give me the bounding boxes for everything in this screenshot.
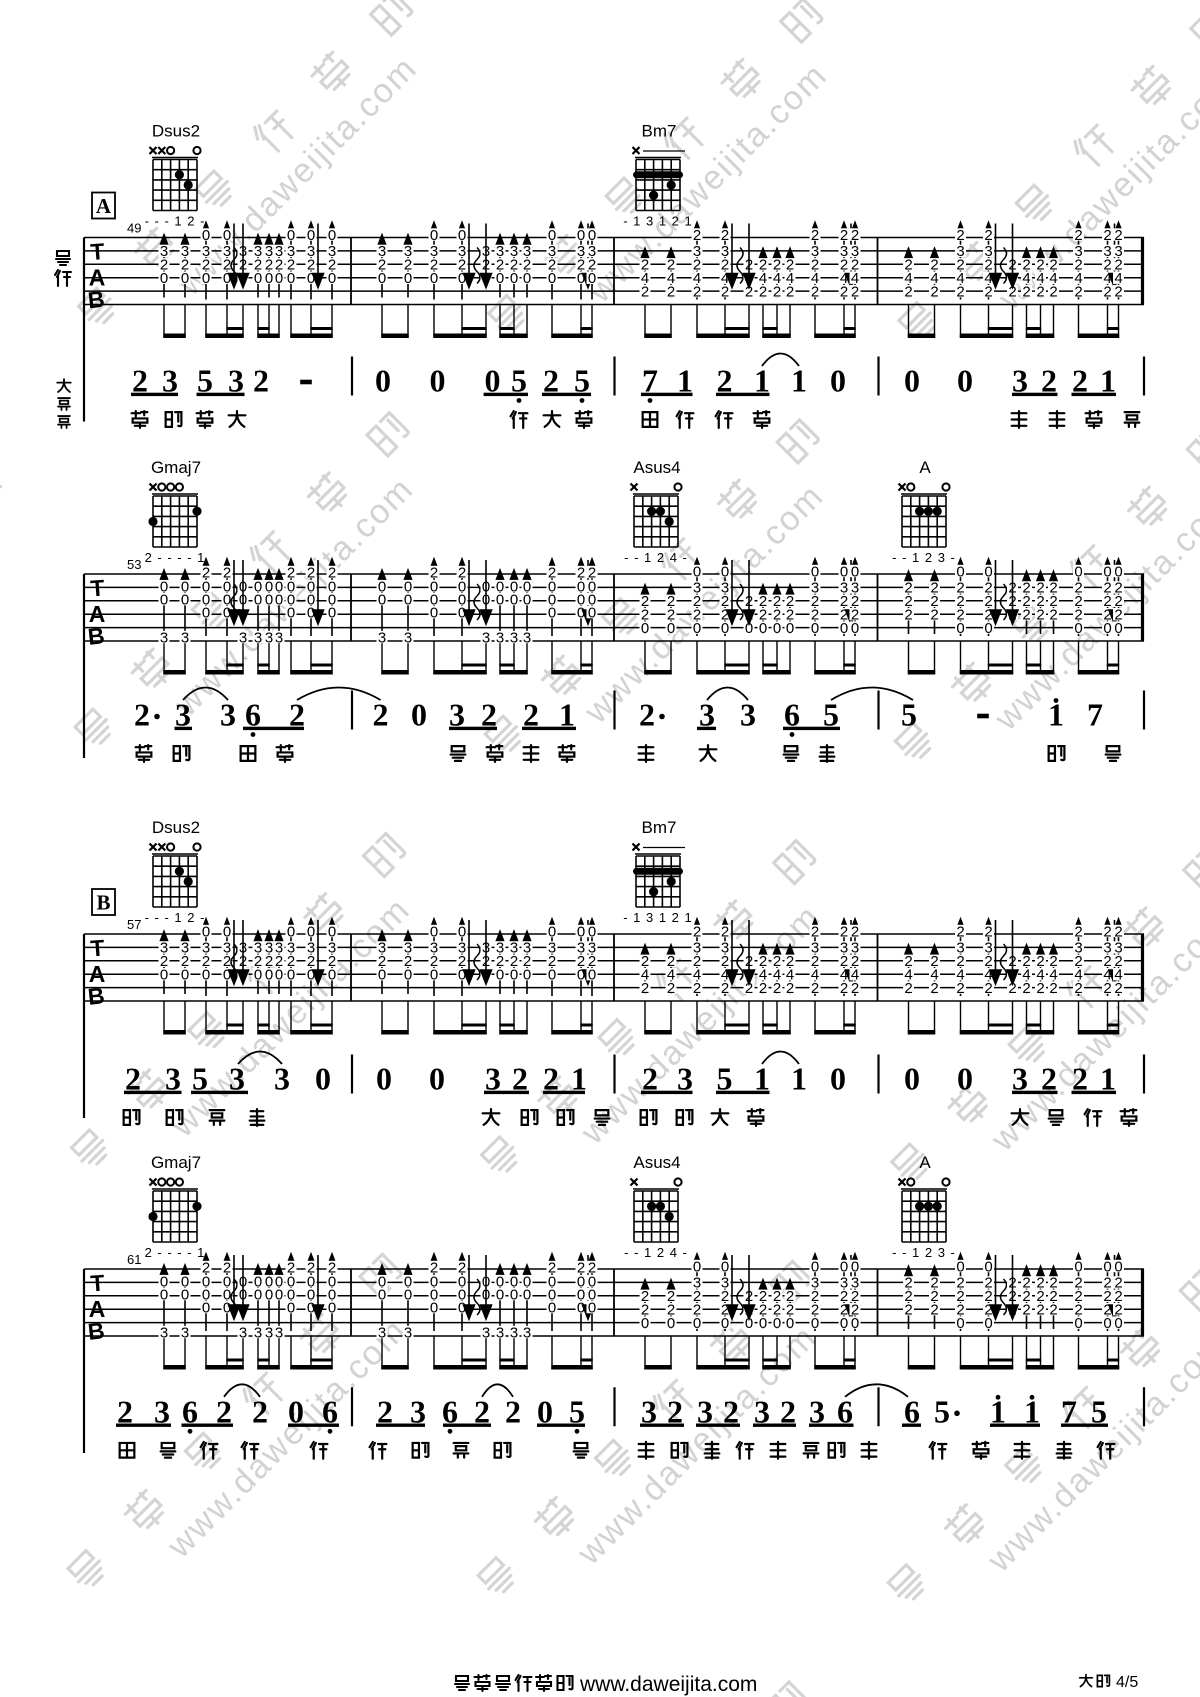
svg-text:53: 53 bbox=[127, 557, 141, 572]
svg-text:0: 0 bbox=[984, 620, 992, 637]
svg-text:0: 0 bbox=[430, 923, 438, 940]
svg-text:0: 0 bbox=[404, 591, 412, 608]
svg-text:0: 0 bbox=[202, 1299, 210, 1316]
svg-text:0: 0 bbox=[851, 620, 859, 637]
svg-text:2: 2 bbox=[1103, 227, 1111, 244]
svg-text:B: B bbox=[87, 1317, 106, 1345]
svg-text:2: 2 bbox=[904, 980, 912, 997]
svg-text:0: 0 bbox=[254, 270, 262, 287]
svg-text:2: 2 bbox=[373, 697, 389, 733]
svg-text:2: 2 bbox=[1074, 283, 1082, 300]
svg-text:0: 0 bbox=[811, 1315, 819, 1332]
svg-text:0: 0 bbox=[287, 1299, 295, 1316]
svg-text:2: 2 bbox=[1022, 980, 1030, 997]
svg-text:2: 2 bbox=[930, 283, 938, 300]
svg-text:2: 2 bbox=[811, 980, 819, 997]
svg-text:3: 3 bbox=[482, 629, 490, 646]
svg-text:2: 2 bbox=[956, 283, 964, 300]
svg-text:0: 0 bbox=[588, 967, 596, 984]
svg-text:A: A bbox=[919, 458, 931, 477]
svg-text:0: 0 bbox=[328, 923, 336, 940]
svg-text:0: 0 bbox=[429, 1061, 445, 1097]
svg-text:0: 0 bbox=[328, 270, 336, 287]
svg-text:0: 0 bbox=[721, 620, 729, 637]
svg-text:0: 0 bbox=[840, 563, 848, 580]
svg-text:2: 2 bbox=[1036, 1302, 1044, 1319]
svg-text:57: 57 bbox=[127, 917, 141, 932]
svg-text:0: 0 bbox=[254, 1286, 262, 1303]
svg-text:2: 2 bbox=[904, 607, 912, 624]
svg-text:- 1 3 1 2 1: - 1 3 1 2 1 bbox=[623, 910, 693, 925]
svg-text:2 - - - - 1: 2 - - - - 1 bbox=[145, 1245, 206, 1260]
svg-text:A: A bbox=[919, 1153, 931, 1172]
svg-text:0: 0 bbox=[160, 591, 168, 608]
svg-text:0: 0 bbox=[430, 967, 438, 984]
svg-text:3: 3 bbox=[404, 1324, 412, 1341]
svg-text:0: 0 bbox=[430, 1299, 438, 1316]
svg-text:2: 2 bbox=[773, 980, 781, 997]
svg-text:2: 2 bbox=[721, 923, 729, 940]
svg-text:0: 0 bbox=[984, 1258, 992, 1275]
svg-text:0: 0 bbox=[275, 1286, 283, 1303]
svg-text:2: 2 bbox=[984, 923, 992, 940]
svg-text:0: 0 bbox=[523, 270, 531, 287]
svg-text:0: 0 bbox=[548, 270, 556, 287]
svg-text:2: 2 bbox=[1114, 980, 1122, 997]
svg-text:0: 0 bbox=[851, 1258, 859, 1275]
svg-text:0: 0 bbox=[548, 923, 556, 940]
svg-text:T: T bbox=[90, 238, 106, 265]
svg-text:2: 2 bbox=[811, 227, 819, 244]
svg-text:0: 0 bbox=[693, 563, 701, 580]
svg-text:0: 0 bbox=[411, 697, 427, 733]
svg-text:Dsus2: Dsus2 bbox=[152, 818, 200, 837]
svg-text:3: 3 bbox=[254, 1324, 262, 1341]
svg-text:61: 61 bbox=[127, 1252, 141, 1267]
svg-text:0: 0 bbox=[667, 1315, 675, 1332]
svg-text:0: 0 bbox=[202, 270, 210, 287]
svg-text:2: 2 bbox=[904, 283, 912, 300]
svg-text:2: 2 bbox=[1022, 1302, 1030, 1319]
svg-text:3: 3 bbox=[523, 1324, 531, 1341]
svg-text:0: 0 bbox=[1114, 1258, 1122, 1275]
svg-text:- - 1 2 3 -: - - 1 2 3 - bbox=[892, 1245, 956, 1260]
svg-text:2: 2 bbox=[786, 283, 794, 300]
svg-text:0: 0 bbox=[721, 1315, 729, 1332]
svg-text:0: 0 bbox=[265, 270, 273, 287]
svg-text:4/5: 4/5 bbox=[1116, 1674, 1138, 1691]
svg-text:0: 0 bbox=[773, 620, 781, 637]
svg-text:0: 0 bbox=[759, 1315, 767, 1332]
svg-text:0: 0 bbox=[223, 227, 231, 244]
svg-text:0: 0 bbox=[904, 1061, 920, 1097]
svg-text:2: 2 bbox=[773, 283, 781, 300]
svg-text:0: 0 bbox=[375, 363, 391, 399]
svg-text:2: 2 bbox=[1036, 283, 1044, 300]
svg-text:2: 2 bbox=[253, 363, 269, 399]
svg-text:2: 2 bbox=[904, 1302, 912, 1319]
svg-text:0: 0 bbox=[1103, 563, 1111, 580]
svg-text:2: 2 bbox=[252, 1393, 268, 1429]
svg-text:0: 0 bbox=[641, 1315, 649, 1332]
svg-text:5: 5 bbox=[934, 1393, 950, 1429]
svg-text:0: 0 bbox=[307, 923, 315, 940]
svg-text:0: 0 bbox=[721, 563, 729, 580]
svg-text:- 1 3 1 2 1: - 1 3 1 2 1 bbox=[623, 214, 693, 229]
svg-text:2: 2 bbox=[840, 980, 848, 997]
svg-text:5: 5 bbox=[901, 697, 917, 733]
svg-text:2: 2 bbox=[930, 607, 938, 624]
svg-text:1: 1 bbox=[791, 1061, 807, 1097]
svg-text:3: 3 bbox=[496, 629, 504, 646]
svg-text:0: 0 bbox=[378, 967, 386, 984]
svg-text:0: 0 bbox=[984, 1315, 992, 1332]
svg-text:T: T bbox=[90, 1270, 106, 1297]
svg-text:3: 3 bbox=[160, 1324, 168, 1341]
svg-text:0: 0 bbox=[458, 227, 466, 244]
svg-text:0: 0 bbox=[275, 967, 283, 984]
svg-text:0: 0 bbox=[851, 563, 859, 580]
svg-text:2: 2 bbox=[1049, 980, 1057, 997]
svg-text:0: 0 bbox=[510, 967, 518, 984]
svg-text:3: 3 bbox=[160, 629, 168, 646]
svg-text:2: 2 bbox=[851, 227, 859, 244]
svg-text:2: 2 bbox=[851, 283, 859, 300]
svg-text:0: 0 bbox=[577, 923, 585, 940]
svg-text:0: 0 bbox=[378, 270, 386, 287]
svg-text:0: 0 bbox=[315, 1061, 331, 1097]
svg-text:3: 3 bbox=[265, 629, 273, 646]
svg-text:0: 0 bbox=[510, 1286, 518, 1303]
svg-text:0: 0 bbox=[523, 1286, 531, 1303]
svg-text:2: 2 bbox=[1103, 980, 1111, 997]
svg-text:0: 0 bbox=[328, 967, 336, 984]
svg-text:2: 2 bbox=[930, 980, 938, 997]
svg-text:0: 0 bbox=[588, 270, 596, 287]
svg-text:0: 0 bbox=[496, 591, 504, 608]
svg-text:0: 0 bbox=[160, 967, 168, 984]
svg-text:0: 0 bbox=[957, 1061, 973, 1097]
svg-text:0: 0 bbox=[957, 363, 973, 399]
svg-text:0: 0 bbox=[830, 363, 846, 399]
svg-text:2: 2 bbox=[641, 980, 649, 997]
svg-text:0: 0 bbox=[786, 1315, 794, 1332]
svg-text:3: 3 bbox=[740, 697, 756, 733]
svg-text:B: B bbox=[87, 286, 106, 314]
svg-text:2: 2 bbox=[811, 923, 819, 940]
svg-text:3: 3 bbox=[482, 1324, 490, 1341]
svg-text:3: 3 bbox=[378, 629, 386, 646]
svg-text:0: 0 bbox=[265, 591, 273, 608]
svg-text:Asus4: Asus4 bbox=[633, 1153, 680, 1172]
svg-text:0: 0 bbox=[548, 227, 556, 244]
svg-text:T: T bbox=[90, 575, 106, 602]
svg-text:0: 0 bbox=[404, 270, 412, 287]
svg-text:0: 0 bbox=[759, 620, 767, 637]
svg-text:3: 3 bbox=[275, 1324, 283, 1341]
svg-text:0: 0 bbox=[275, 591, 283, 608]
svg-text:0: 0 bbox=[773, 1315, 781, 1332]
svg-text:0: 0 bbox=[430, 227, 438, 244]
svg-text:0: 0 bbox=[693, 1315, 701, 1332]
svg-text:2 - - - - 1: 2 - - - - 1 bbox=[145, 550, 206, 565]
svg-text:0: 0 bbox=[840, 1315, 848, 1332]
svg-text:0: 0 bbox=[1074, 563, 1082, 580]
svg-text:0: 0 bbox=[328, 604, 336, 621]
svg-text:0: 0 bbox=[328, 227, 336, 244]
svg-text:0: 0 bbox=[811, 563, 819, 580]
svg-text:2: 2 bbox=[759, 283, 767, 300]
svg-text:0: 0 bbox=[254, 967, 262, 984]
svg-text:0: 0 bbox=[202, 967, 210, 984]
svg-text:0: 0 bbox=[202, 923, 210, 940]
svg-text:3: 3 bbox=[274, 1061, 290, 1097]
svg-text:0: 0 bbox=[254, 591, 262, 608]
svg-text:2: 2 bbox=[134, 697, 150, 733]
svg-text:0: 0 bbox=[721, 1258, 729, 1275]
svg-text:2: 2 bbox=[1049, 1302, 1057, 1319]
svg-text:0: 0 bbox=[378, 1286, 386, 1303]
svg-text:2: 2 bbox=[840, 283, 848, 300]
svg-text:0: 0 bbox=[510, 591, 518, 608]
svg-text:0: 0 bbox=[378, 591, 386, 608]
svg-text:Gmaj7: Gmaj7 bbox=[151, 458, 201, 477]
svg-text:2: 2 bbox=[984, 980, 992, 997]
svg-text:0: 0 bbox=[1103, 620, 1111, 637]
svg-text:Asus4: Asus4 bbox=[633, 458, 680, 477]
svg-text:0: 0 bbox=[287, 604, 295, 621]
svg-text:2: 2 bbox=[1074, 980, 1082, 997]
svg-text:0: 0 bbox=[577, 227, 585, 244]
svg-text:3: 3 bbox=[496, 1324, 504, 1341]
svg-text:2: 2 bbox=[1114, 923, 1122, 940]
svg-text:0: 0 bbox=[496, 1286, 504, 1303]
svg-text:0: 0 bbox=[523, 591, 531, 608]
svg-text:0: 0 bbox=[376, 1061, 392, 1097]
svg-text:2: 2 bbox=[840, 227, 848, 244]
svg-text:0: 0 bbox=[160, 270, 168, 287]
svg-text:0: 0 bbox=[693, 1258, 701, 1275]
svg-text:2: 2 bbox=[1103, 923, 1111, 940]
svg-text:0: 0 bbox=[1074, 1315, 1082, 1332]
svg-text:2: 2 bbox=[1022, 607, 1030, 624]
svg-text:0: 0 bbox=[588, 923, 596, 940]
svg-text:0: 0 bbox=[287, 227, 295, 244]
svg-text:0: 0 bbox=[811, 620, 819, 637]
svg-text:0: 0 bbox=[904, 363, 920, 399]
svg-text:2: 2 bbox=[956, 923, 964, 940]
svg-text:0: 0 bbox=[1103, 1258, 1111, 1275]
svg-text:0: 0 bbox=[830, 1061, 846, 1097]
svg-text:0: 0 bbox=[404, 967, 412, 984]
svg-text:0: 0 bbox=[202, 604, 210, 621]
svg-text:2: 2 bbox=[721, 283, 729, 300]
svg-text:0: 0 bbox=[404, 1286, 412, 1303]
svg-text:0: 0 bbox=[181, 967, 189, 984]
svg-text:2: 2 bbox=[1036, 607, 1044, 624]
svg-text:0: 0 bbox=[202, 227, 210, 244]
svg-text:2: 2 bbox=[851, 980, 859, 997]
svg-text:2: 2 bbox=[693, 923, 701, 940]
svg-text:0: 0 bbox=[510, 270, 518, 287]
svg-text:0: 0 bbox=[984, 563, 992, 580]
svg-text:2: 2 bbox=[721, 227, 729, 244]
svg-text:2: 2 bbox=[693, 227, 701, 244]
svg-text:2: 2 bbox=[984, 283, 992, 300]
svg-text:3: 3 bbox=[181, 1324, 189, 1341]
svg-text:0: 0 bbox=[265, 967, 273, 984]
svg-text:0: 0 bbox=[160, 1286, 168, 1303]
svg-text:0: 0 bbox=[275, 270, 283, 287]
svg-text:2: 2 bbox=[639, 697, 655, 733]
svg-text:3: 3 bbox=[265, 1324, 273, 1341]
svg-text:2: 2 bbox=[1074, 923, 1082, 940]
svg-text:- - - 1 2 -: - - - 1 2 - bbox=[145, 910, 206, 925]
svg-text:49: 49 bbox=[127, 221, 141, 236]
svg-text:0: 0 bbox=[851, 1315, 859, 1332]
svg-text:2: 2 bbox=[667, 980, 675, 997]
svg-text:A: A bbox=[96, 194, 112, 218]
svg-text:3: 3 bbox=[239, 629, 247, 646]
svg-text:0: 0 bbox=[496, 270, 504, 287]
svg-text:B: B bbox=[87, 622, 106, 650]
svg-text:2: 2 bbox=[786, 980, 794, 997]
svg-text:2: 2 bbox=[840, 923, 848, 940]
svg-text:0: 0 bbox=[223, 923, 231, 940]
svg-text:3: 3 bbox=[239, 1324, 247, 1341]
svg-text:0: 0 bbox=[641, 620, 649, 637]
svg-text:0: 0 bbox=[287, 967, 295, 984]
svg-text:2: 2 bbox=[930, 1302, 938, 1319]
svg-text:0: 0 bbox=[328, 1299, 336, 1316]
svg-text:Bm7: Bm7 bbox=[642, 818, 677, 837]
svg-text:2: 2 bbox=[1036, 980, 1044, 997]
svg-text:3: 3 bbox=[510, 1324, 518, 1341]
svg-text:B: B bbox=[87, 982, 106, 1010]
svg-text:3: 3 bbox=[378, 1324, 386, 1341]
svg-text:0: 0 bbox=[265, 1286, 273, 1303]
svg-text:0: 0 bbox=[1074, 620, 1082, 637]
svg-text:0: 0 bbox=[307, 227, 315, 244]
svg-text:0: 0 bbox=[1074, 1258, 1082, 1275]
svg-text:0: 0 bbox=[956, 563, 964, 580]
svg-text:2: 2 bbox=[1114, 283, 1122, 300]
svg-text:0: 0 bbox=[667, 620, 675, 637]
svg-text:2: 2 bbox=[1103, 283, 1111, 300]
svg-text:3: 3 bbox=[523, 629, 531, 646]
svg-text:2: 2 bbox=[1074, 227, 1082, 244]
svg-text:0: 0 bbox=[1114, 620, 1122, 637]
svg-text:B: B bbox=[96, 891, 110, 915]
svg-text:0: 0 bbox=[693, 620, 701, 637]
svg-text:0: 0 bbox=[458, 923, 466, 940]
svg-text:0: 0 bbox=[956, 620, 964, 637]
svg-text:3: 3 bbox=[254, 629, 262, 646]
svg-text:2: 2 bbox=[667, 283, 675, 300]
svg-text:0: 0 bbox=[496, 967, 504, 984]
svg-text:- - 1 2 4 -: - - 1 2 4 - bbox=[624, 1245, 688, 1260]
svg-text:2: 2 bbox=[693, 283, 701, 300]
svg-text:2: 2 bbox=[721, 980, 729, 997]
svg-text:2: 2 bbox=[956, 980, 964, 997]
svg-text:2: 2 bbox=[505, 1393, 521, 1429]
svg-text:2: 2 bbox=[1022, 283, 1030, 300]
svg-text:2: 2 bbox=[851, 923, 859, 940]
svg-text:2: 2 bbox=[693, 980, 701, 997]
svg-text:www.daweijita.com: www.daweijita.com bbox=[579, 1673, 757, 1696]
svg-text:3: 3 bbox=[275, 629, 283, 646]
svg-text:2: 2 bbox=[984, 227, 992, 244]
svg-text:T: T bbox=[90, 935, 106, 962]
svg-text:0: 0 bbox=[430, 604, 438, 621]
svg-text:0: 0 bbox=[588, 227, 596, 244]
svg-text:3: 3 bbox=[510, 629, 518, 646]
svg-text:Dsus2: Dsus2 bbox=[152, 122, 200, 141]
svg-text:3: 3 bbox=[181, 629, 189, 646]
svg-text:- - 1 2 4 -: - - 1 2 4 - bbox=[624, 550, 688, 565]
svg-text:2: 2 bbox=[641, 283, 649, 300]
svg-text:0: 0 bbox=[1114, 1315, 1122, 1332]
svg-text:0: 0 bbox=[786, 620, 794, 637]
svg-text:0: 0 bbox=[956, 1258, 964, 1275]
svg-text:0: 0 bbox=[181, 1286, 189, 1303]
svg-text:0: 0 bbox=[548, 604, 556, 621]
svg-text:2: 2 bbox=[1049, 283, 1057, 300]
svg-text:0: 0 bbox=[956, 1315, 964, 1332]
svg-text:2: 2 bbox=[956, 227, 964, 244]
svg-text:2: 2 bbox=[759, 980, 767, 997]
svg-text:3: 3 bbox=[220, 697, 236, 733]
svg-text:0: 0 bbox=[1103, 1315, 1111, 1332]
svg-text:0: 0 bbox=[287, 923, 295, 940]
svg-text:Gmaj7: Gmaj7 bbox=[151, 1153, 201, 1172]
svg-text:0: 0 bbox=[548, 967, 556, 984]
svg-text:0: 0 bbox=[430, 270, 438, 287]
svg-text:7: 7 bbox=[1087, 697, 1103, 733]
svg-text:0: 0 bbox=[430, 363, 446, 399]
svg-text:0: 0 bbox=[840, 620, 848, 637]
svg-text:Bm7: Bm7 bbox=[642, 122, 677, 141]
svg-text:0: 0 bbox=[548, 1299, 556, 1316]
svg-text:0: 0 bbox=[840, 1258, 848, 1275]
svg-text:3: 3 bbox=[404, 629, 412, 646]
svg-text:1: 1 bbox=[791, 363, 807, 399]
svg-text:0: 0 bbox=[588, 1299, 596, 1316]
svg-text:2: 2 bbox=[1114, 227, 1122, 244]
svg-text:0: 0 bbox=[811, 1258, 819, 1275]
svg-text:0: 0 bbox=[287, 270, 295, 287]
svg-text:2: 2 bbox=[1049, 607, 1057, 624]
svg-text:0: 0 bbox=[588, 604, 596, 621]
svg-text:- - - 1 2 -: - - - 1 2 - bbox=[145, 214, 206, 229]
svg-text:0: 0 bbox=[181, 591, 189, 608]
svg-text:0: 0 bbox=[1114, 563, 1122, 580]
svg-text:0: 0 bbox=[181, 270, 189, 287]
svg-text:- - 1 2 3 -: - - 1 2 3 - bbox=[892, 550, 956, 565]
svg-text:0: 0 bbox=[523, 967, 531, 984]
svg-text:2: 2 bbox=[811, 283, 819, 300]
